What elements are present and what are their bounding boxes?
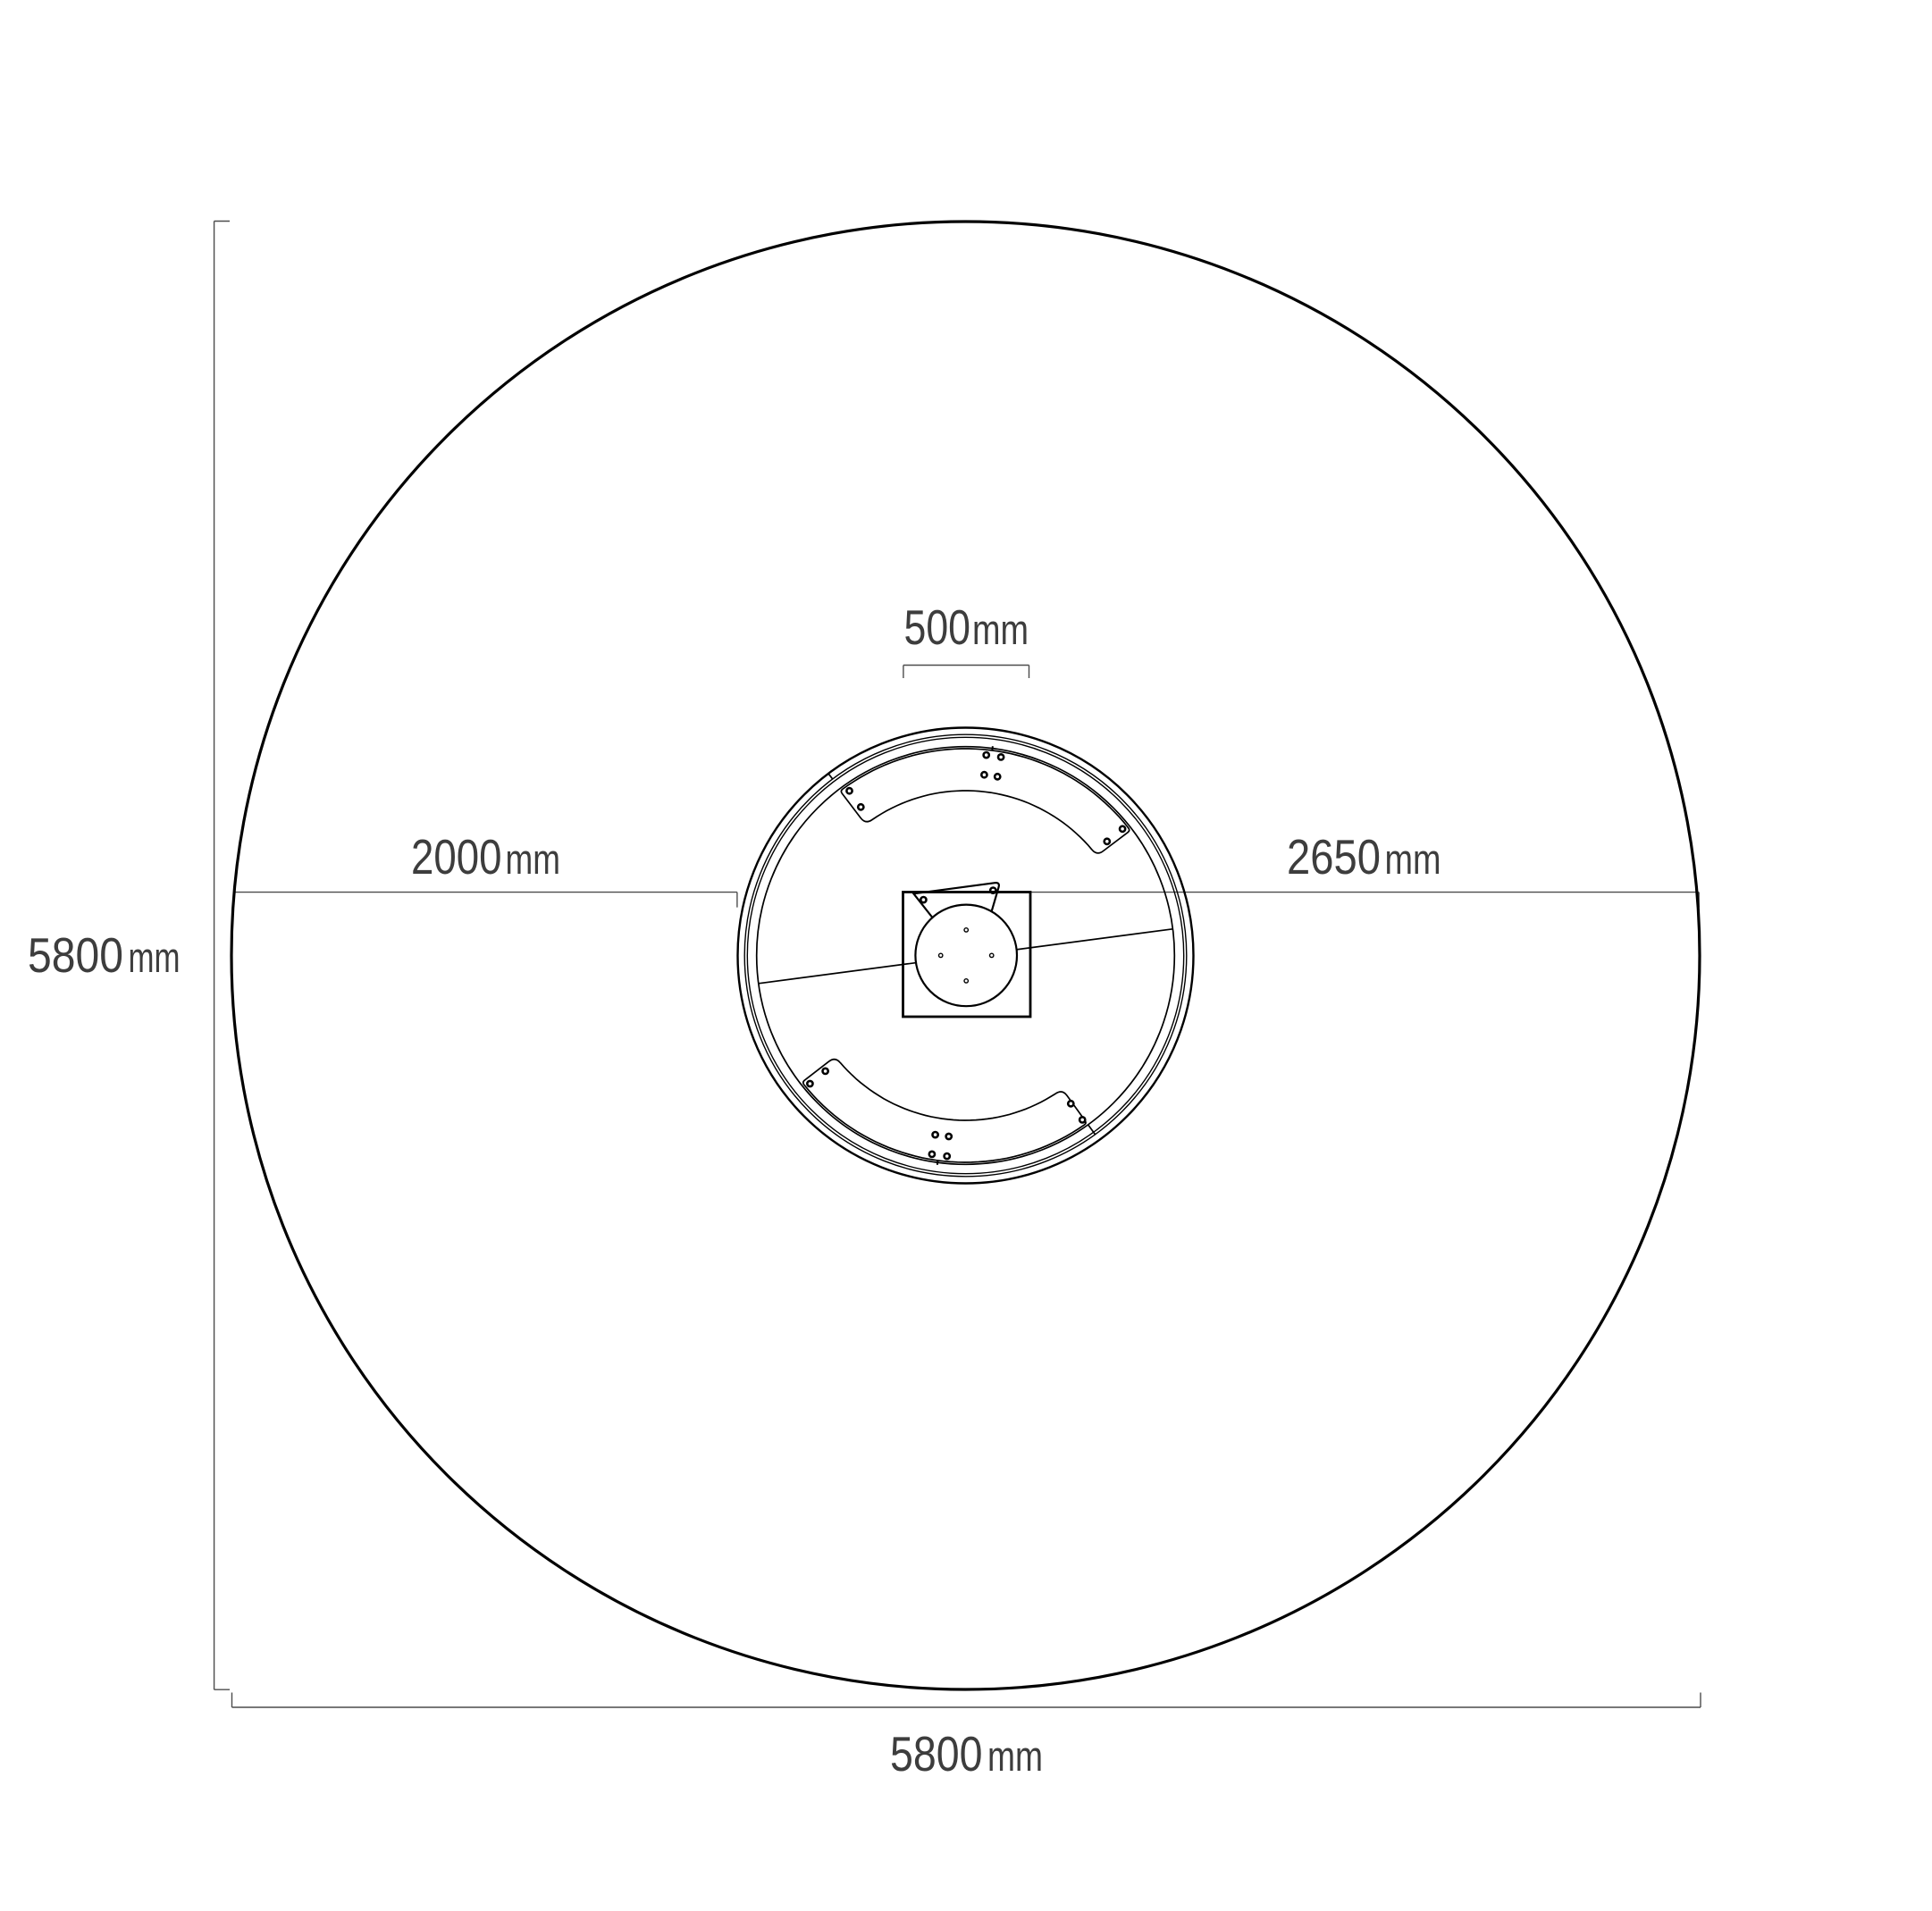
svg-text:2000: 2000: [411, 829, 502, 884]
svg-text:mm: mm: [1385, 835, 1441, 883]
svg-text:5800: 5800: [890, 1726, 983, 1781]
svg-text:500: 500: [904, 599, 971, 655]
svg-text:mm: mm: [972, 606, 1029, 653]
svg-text:mm: mm: [129, 934, 181, 981]
svg-text:5800: 5800: [28, 927, 123, 983]
svg-text:mm: mm: [987, 1732, 1043, 1780]
svg-text:2650: 2650: [1287, 829, 1381, 884]
svg-text:mm: mm: [506, 835, 561, 883]
